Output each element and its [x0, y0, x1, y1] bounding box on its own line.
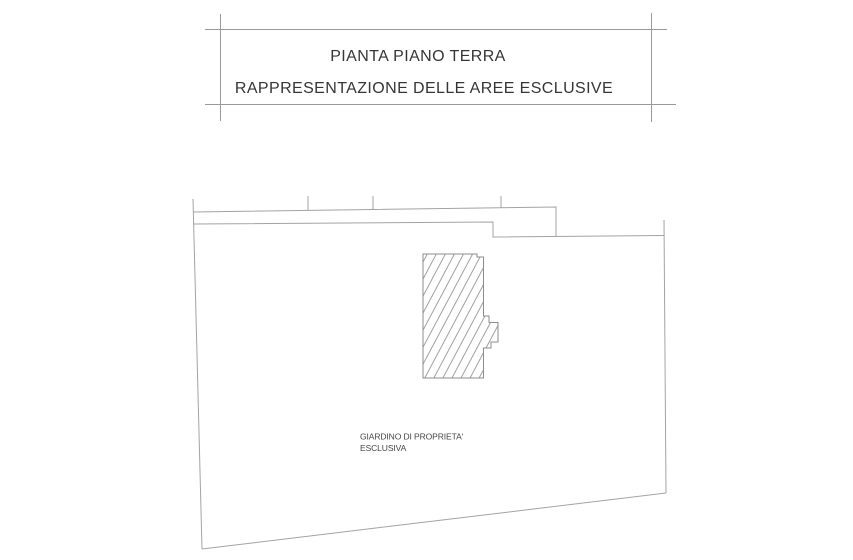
garden-label: GIARDINO DI PROPRIETA' ESCLUSIVA	[360, 432, 464, 454]
boundary-top-upper-line	[193, 207, 556, 236]
floor-plan-page: PIANTA PIANO TERRA RAPPRESENTAZIONE DELL…	[0, 0, 853, 560]
title-block: PIANTA PIANO TERRA RAPPRESENTAZIONE DELL…	[205, 13, 676, 122]
boundary-top-lower-line	[193, 222, 664, 237]
hatched-area-shape	[423, 254, 498, 378]
garden-label-line2: ESCLUSIVA	[360, 443, 407, 453]
floor-plan-drawing: PIANTA PIANO TERRA RAPPRESENTAZIONE DELL…	[0, 0, 853, 560]
building-footprint	[423, 254, 498, 378]
garden-label-line1: GIARDINO DI PROPRIETA'	[360, 432, 464, 442]
plan-title-line1: PIANTA PIANO TERRA	[330, 48, 506, 65]
boundary-bottom-edge	[202, 493, 666, 549]
plan-title-line2: RAPPRESENTAZIONE DELLE AREE ESCLUSIVE	[235, 80, 613, 97]
title-frame	[205, 13, 676, 122]
boundary-left-edge	[193, 199, 202, 549]
boundary-right-edge	[664, 220, 666, 493]
